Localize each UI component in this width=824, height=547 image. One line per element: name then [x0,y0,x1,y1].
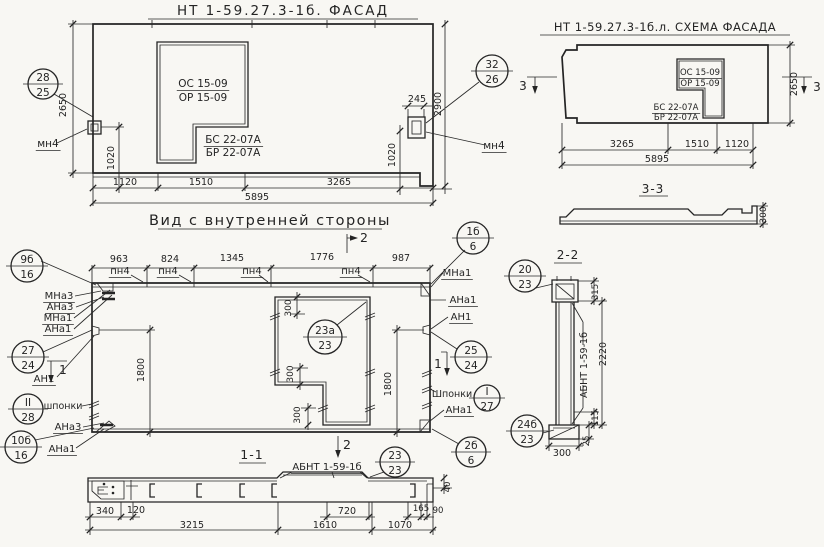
inner-shponki-left: шпонки [44,401,83,412]
callout-9b-16-bottom: 16 [20,269,34,281]
inner-mna1-left: МНа1 [44,313,73,324]
scheme-br-mark: БР 22-07А [654,113,698,123]
callout-23-23: 2323 [375,447,415,477]
section-arrowhead [444,368,450,376]
sec22-bar-inner [559,302,571,425]
facade-dim-1020-left: 1020 [106,146,117,170]
callout-II-28: II28 [8,394,48,424]
section-arrowhead [335,450,341,458]
callout-32-26-bottom: 26 [485,74,499,86]
callout-9b-16: 9б16 [6,250,48,282]
inner-ana3-left: АНа3 [47,302,74,313]
sec22-dim-25: 25 [582,436,592,447]
callout-10b-16: 10б16 [0,431,42,463]
drawing-canvas: НТ 1-59.27.3-1б. ФАСАДНТ 1-59.27.3-1б.л.… [0,0,824,547]
sec11-left-end-detail [92,480,138,500]
callout-1b-6-top: 1б [466,226,479,238]
drawing-sheet: НТ 1-59.27.3-1б. ФАСАДНТ 1-59.27.3-1б.л.… [0,0,824,547]
callout-1b-6-bottom: 6 [470,241,477,253]
callout-23-23-bottom: 23 [388,465,401,477]
scheme-os-mark: ОС 15-09 [680,68,720,78]
inner-pn4-a: пн4 [110,266,129,277]
callout-20-23-top: 20 [518,264,531,276]
callout-2b-6: 2б6 [451,437,491,467]
text-labels: НТ 1-59.27.3-1б. ФАСАДНТ 1-59.27.3-1б.л.… [32,3,821,531]
inner-ana1-left: АНа1 [45,324,72,335]
scheme-or-mark: ОР 15-09 [680,79,719,89]
section-2-2 [549,276,579,439]
sec11-bar-outline [88,472,433,502]
inner-pn4-b: пн4 [158,266,177,277]
facade-or-mark: ОР 15-09 [179,92,227,104]
callout-28-25-top: 28 [36,72,49,84]
facade-dim-245: 245 [408,94,426,105]
sec11-anchor-dot-2 [112,492,115,495]
section-arrowhead [801,86,807,94]
callout-2b-6-bottom: 6 [468,455,475,467]
callout-32-26: 3226 [471,55,513,87]
callout-I-27-bottom: 27 [480,401,493,413]
inner-dim-1800-left: 1800 [136,358,147,382]
facade-bs-mark: БС 22-07А [205,134,261,146]
callout-I-27-top: I [485,386,488,398]
inner-pn4-d: пн4 [341,266,360,277]
inner-pn4-c: пн4 [242,266,261,277]
inner-ana3-left-bottom: АНа3 [55,422,82,433]
callout-27-24-bottom: 24 [21,360,35,372]
callout-10b-16-top: 10б [11,435,31,447]
facade-anchor-mn4-right-inner [412,121,421,134]
callout-27-24: 2724 [7,341,49,373]
callout-10b-16-bottom: 16 [14,450,28,462]
callout-24b-23: 24б23 [506,415,548,447]
callout-23a-23: 23а23 [303,320,347,354]
sec22-abnt-mark: АБНТ 1-59-1б [579,332,590,398]
sec22-dim-300: 300 [553,448,571,459]
callout-28-25-bottom: 25 [36,87,49,99]
inner-dim-300-bottom: 300 [293,406,303,423]
title-inner-view: Вид с внутренней стороны [149,213,391,229]
facade-dim-3265: 3265 [327,177,351,188]
scheme-marker-3-left: 3 [519,79,527,93]
marker-2-bottom: 2 [343,437,351,452]
callout-23a-23-bottom: 23 [318,340,331,352]
inner-mna1-right: МНа1 [443,268,472,279]
inner-ana1-right-bottom: АНа1 [446,405,473,416]
inner-dim-300-top: 300 [284,299,294,316]
marker-2-top: 2 [360,230,368,245]
callout-II-28-top: II [25,397,31,409]
inner-shponki-right: Шпонки [432,389,472,400]
section-arrowhead [350,235,358,241]
sec11-stirrups [150,484,415,497]
inner-corner-bottom-right-diag [420,420,430,432]
facade-os-mark: ОС 15-09 [178,78,227,90]
title-section-1-1: 1-1 [240,447,263,462]
title-section-2-2: 2-2 [557,248,580,262]
sec22-bottom-box-diag [549,425,579,439]
sec11-inner-lines [88,472,433,502]
scheme-dim-2650: 2650 [789,72,800,96]
scheme-dim-5895: 5895 [645,154,669,165]
facade-anchor-mn4-right [408,117,425,138]
callout-I-27: I27 [469,385,505,413]
facade-mn4-left: мн4 [37,138,59,150]
facade-dim-2900: 2900 [433,92,444,116]
facade-anchor-mn4-left [88,121,101,134]
sec11-dim-720: 720 [338,506,356,517]
facade-dim-5895: 5895 [245,192,269,203]
inner-dim-1345: 1345 [220,253,244,264]
callout-25-24: 2524 [450,341,492,373]
inner-corner-top-right-diag [421,283,430,296]
inner-dim-987: 987 [392,253,410,264]
sec11-dim-3215: 3215 [180,520,204,531]
facade-dim-1120: 1120 [113,177,137,188]
inner-view-drawing [92,283,430,432]
sec22-dim-315: 315 [591,284,601,300]
inner-mna3-left: МНа3 [45,291,74,302]
scheme-dim-1120: 1120 [725,139,749,150]
scheme-bs-mark: БС 22-07А [654,103,699,113]
sec11-dim-90: 90 [433,506,444,516]
callout-28-25: 2825 [23,69,63,99]
inner-anchor-bump-right [423,325,430,335]
sec22-dim-115: 115 [591,410,601,426]
facade-mn4-right: мн4 [483,140,505,152]
inner-ana1-left-bottom: АНа1 [49,444,76,455]
sec11-dim-40: 40 [443,482,453,493]
callout-23-23-top: 23 [388,450,401,462]
sec11-dim-165: 165 [413,504,429,514]
scheme-dim-3265: 3265 [610,139,634,150]
section-3-3 [560,206,757,224]
title-facade: НТ 1-59.27.3-1б. ФАСАД [177,3,389,19]
inner-dim-824: 824 [161,254,179,265]
marker-1-left: 1 [59,363,67,377]
facade-br-mark: БР 22-07А [206,147,261,159]
inner-dim-963: 963 [110,254,128,265]
sec11-abnt-mark: АБНТ 1-59-1б [292,462,361,473]
inner-anchor-bump-left [92,326,99,336]
sec11-dim-1610: 1610 [313,520,337,531]
callout-1b-6: 1б6 [452,222,494,254]
section-arrowhead [532,86,538,94]
sec11-anchor-dot-1 [112,486,115,489]
sec11-dim-340: 340 [96,506,114,517]
callout-20-23-bottom: 23 [518,279,531,291]
scheme-dim-1510: 1510 [685,139,709,150]
facade-panel-outline [93,24,433,186]
inner-an1-left: АН1 [34,374,55,385]
inner-corner-bottom-left [96,421,115,432]
facade-dim-1510: 1510 [189,177,213,188]
callout-9b-16-top: 9б [20,254,33,266]
title-scheme: НТ 1-59.27.3-1б.л. СХЕМА ФАСАДА [554,20,776,34]
callout-25-24-bottom: 24 [464,360,478,372]
callout-II-28-bottom: 28 [21,412,34,424]
inner-ana1-right-top: АНа1 [450,295,477,306]
inner-dim-1776: 1776 [310,252,334,263]
inner-an1-right: АН1 [451,312,472,323]
inner-panel-outline [92,283,430,432]
section-1-1 [88,472,433,502]
scheme-marker-3-right: 3 [813,80,821,94]
callout-24b-23-bottom: 23 [520,434,533,446]
facade-dim-1020-right: 1020 [387,143,398,167]
marker-1-right: 1 [434,357,442,371]
sec22-dim-2220: 2220 [598,342,609,366]
callout-25-24-top: 25 [464,345,477,357]
callout-2b-6-top: 2б [464,440,477,452]
inner-dim-1800-right: 1800 [383,372,394,396]
callout-24b-23-top: 24б [517,419,537,431]
callout-27-24-top: 27 [21,345,34,357]
sec11-dim-1070: 1070 [388,520,412,531]
anchor-dashes [100,293,115,425]
inner-dim-300-mid: 300 [286,365,296,382]
callout-23a-23-top: 23а [315,325,335,337]
title-section-3-3: 3-3 [642,182,665,196]
section33-dim-300: 300 [759,206,769,223]
facade-anchor-mn4-left-inner [91,124,98,131]
facade-dim-2650: 2650 [58,93,69,117]
sec11-dim-120: 120 [127,505,145,516]
facade-drawing [88,24,433,186]
sec11-anchor-dot-3 [103,483,106,486]
callout-32-26-top: 32 [485,59,498,71]
